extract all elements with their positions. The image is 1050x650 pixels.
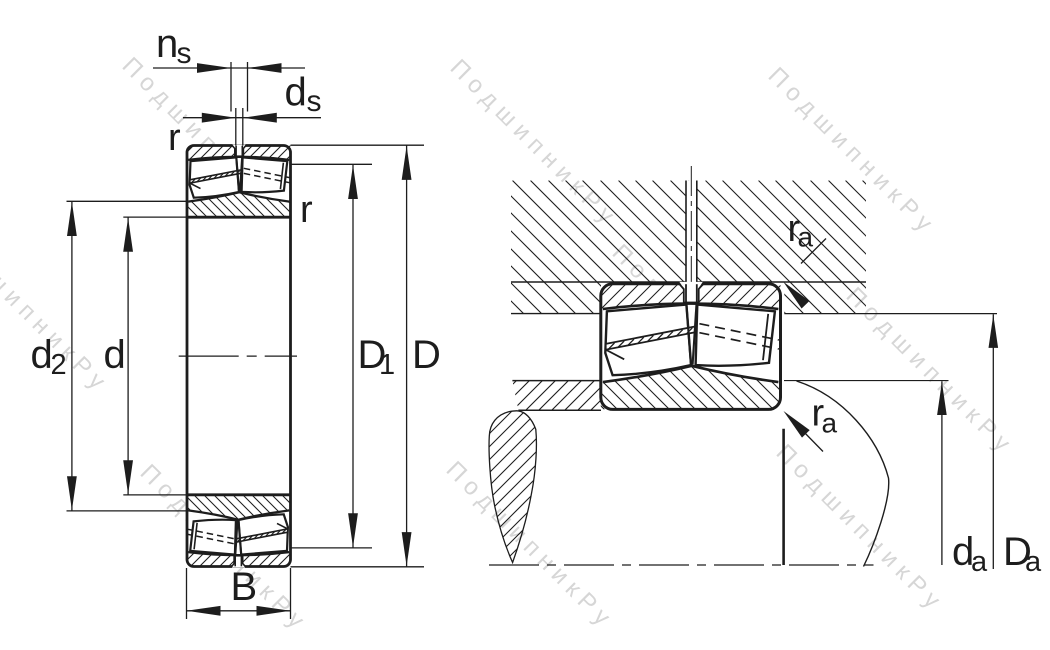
svg-text:a: a: [1025, 546, 1042, 578]
svg-text:r: r: [300, 189, 313, 231]
svg-text:n: n: [156, 22, 178, 66]
svg-text:1: 1: [379, 349, 395, 381]
svg-text:s: s: [307, 85, 322, 118]
svg-text:D: D: [412, 333, 441, 377]
svg-text:B: B: [231, 565, 258, 609]
svg-text:d: d: [31, 333, 53, 377]
svg-text:s: s: [177, 37, 192, 70]
svg-text:a: a: [971, 546, 988, 578]
svg-text:d: d: [104, 333, 126, 377]
svg-text:r: r: [168, 117, 181, 159]
svg-text:d: d: [285, 71, 307, 115]
svg-text:a: a: [822, 408, 838, 439]
svg-text:2: 2: [51, 349, 67, 381]
svg-text:a: a: [798, 222, 814, 253]
